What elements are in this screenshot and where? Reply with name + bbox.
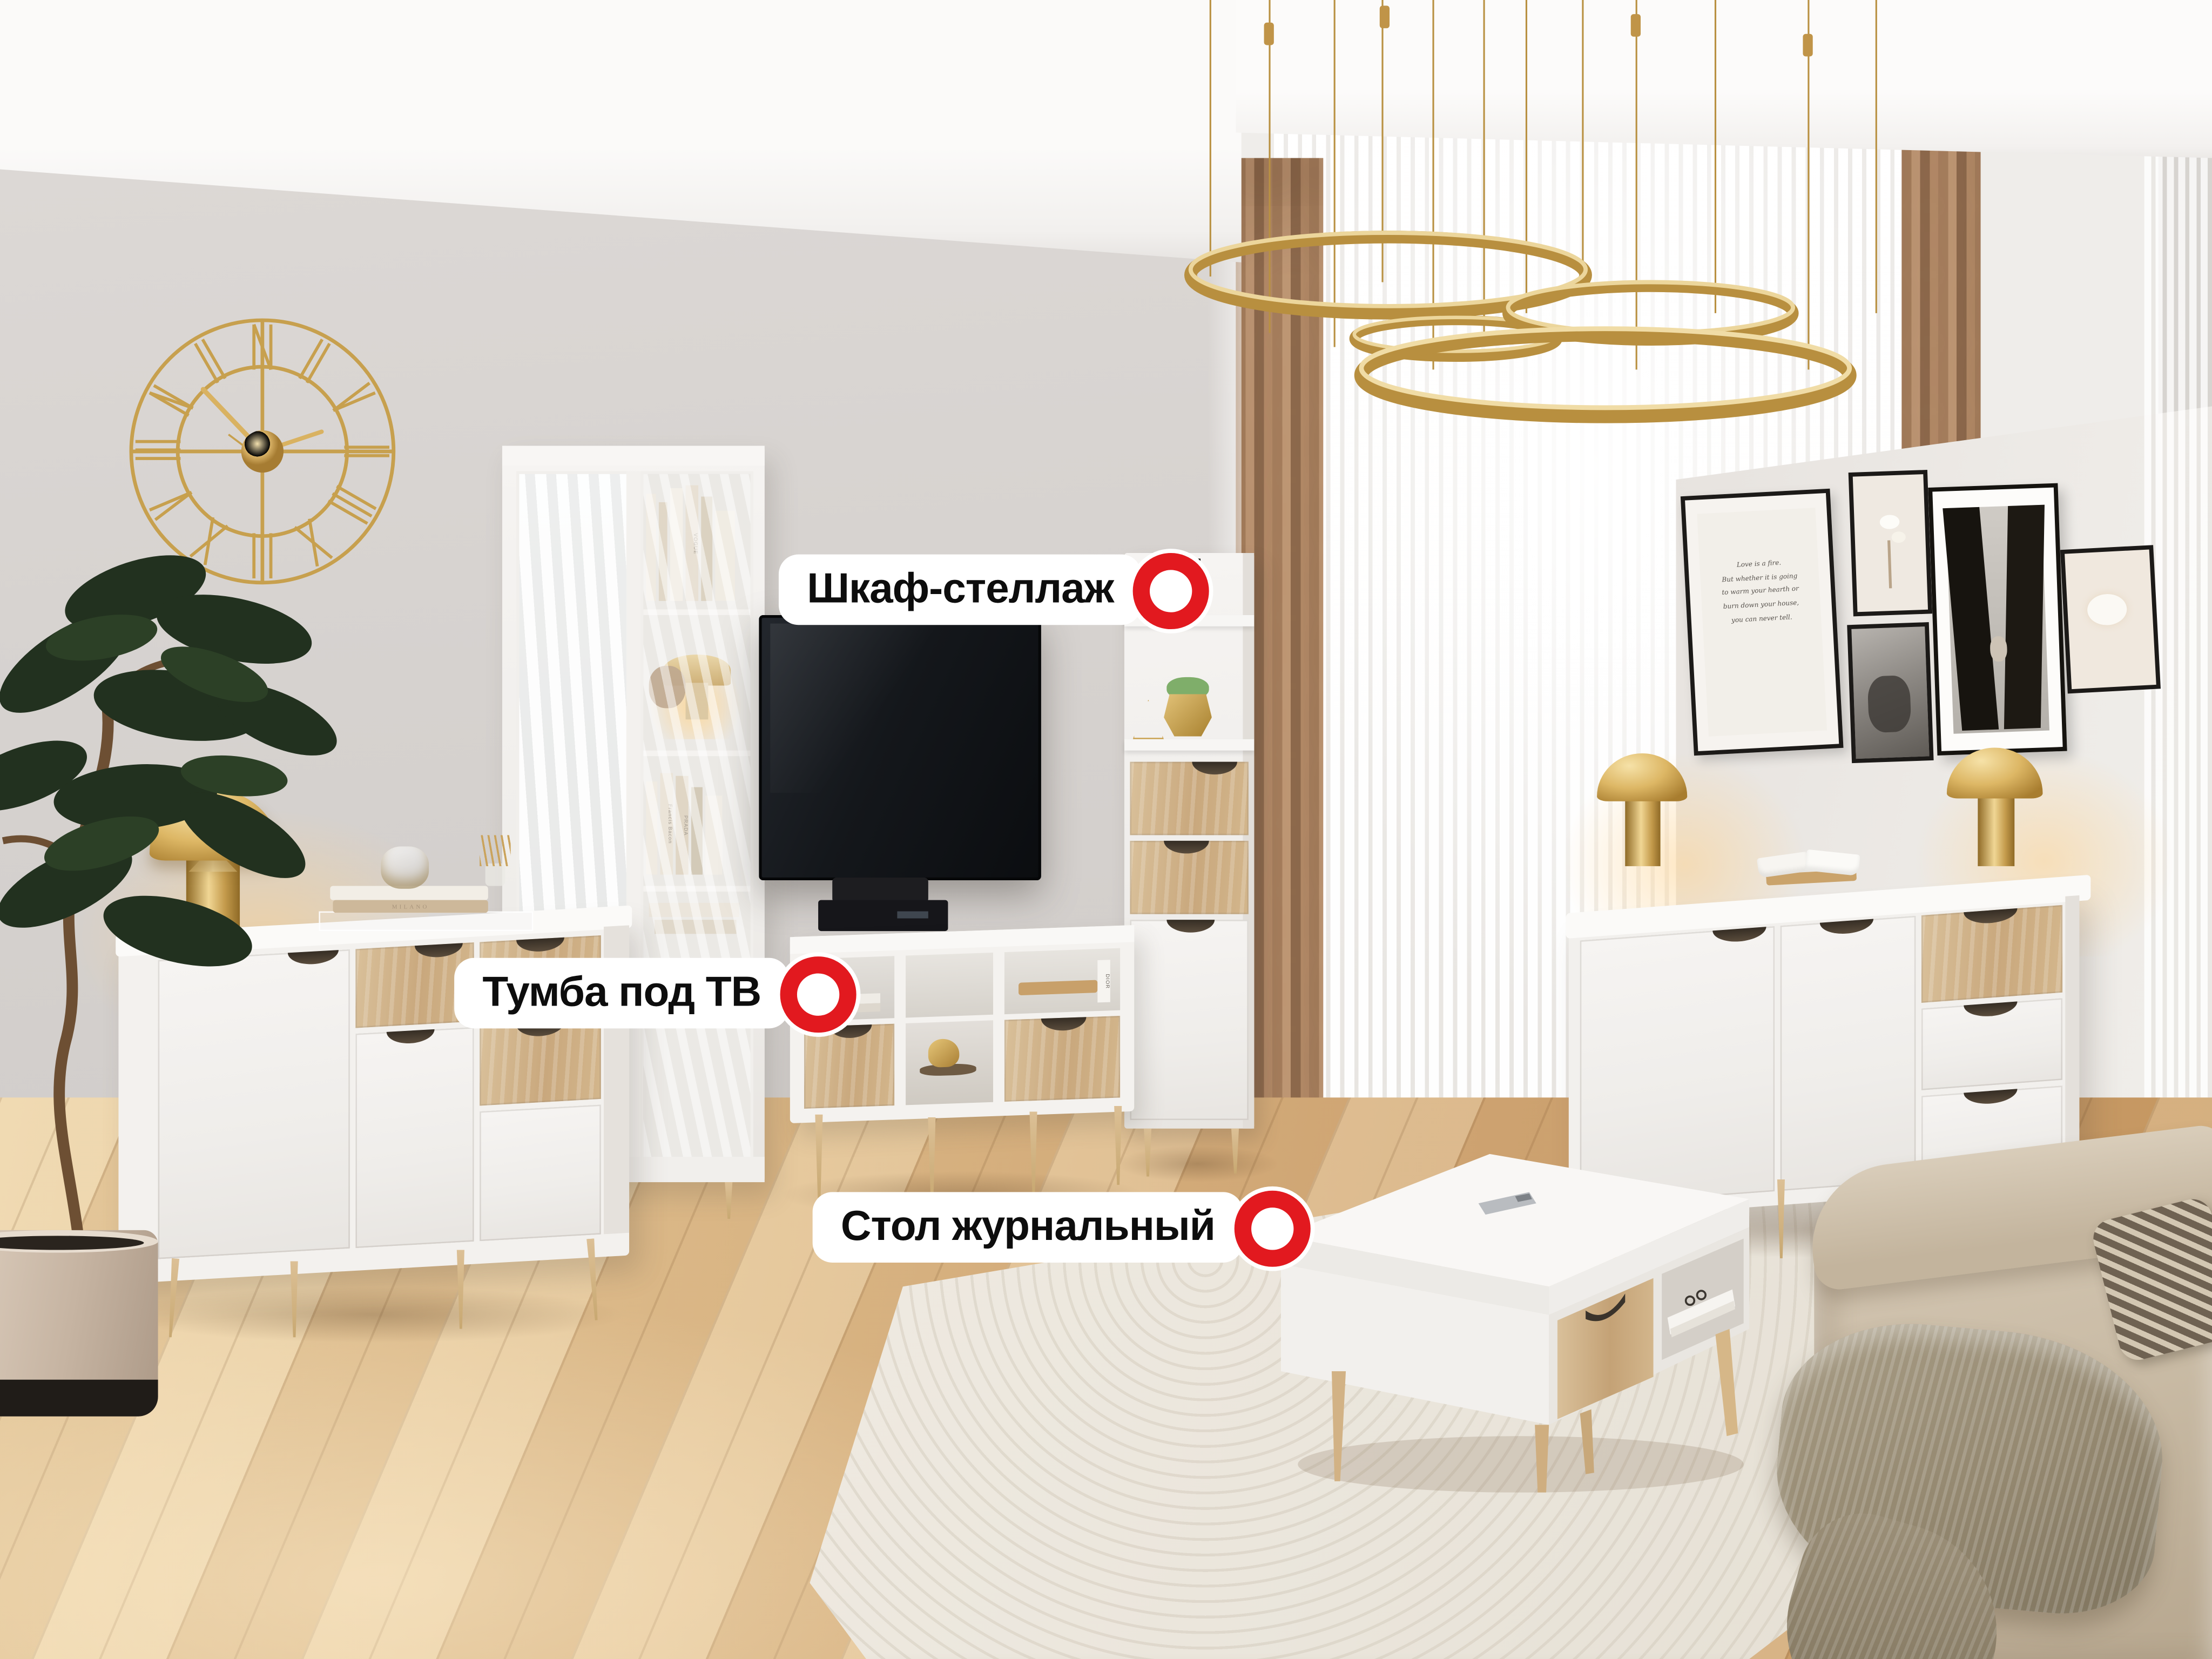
receiver-display [897, 912, 928, 919]
glass-candle [381, 846, 429, 888]
flower [1891, 531, 1906, 543]
gold-mushroom-lamp [1947, 747, 2046, 888]
flower [1879, 515, 1899, 529]
lamp-base [1625, 799, 1660, 866]
lamp-dome [1947, 747, 2043, 798]
tan-book [1019, 980, 1097, 996]
diffuser-reeds [480, 835, 510, 866]
drawer-handle-scoop [1041, 1017, 1087, 1031]
living-room-photo: Love is a fire. But whether it is going … [0, 0, 2212, 1659]
oak-drawer [1130, 762, 1248, 835]
framed-couple-photo [1928, 483, 2067, 756]
glass-door-right: VOGUE Francis Bacon PRADA [640, 471, 753, 1162]
photo-subject [1867, 675, 1912, 733]
gold-mushroom-lamp [1597, 753, 1690, 889]
annotation-marker-ring[interactable] [781, 956, 857, 1033]
drawer-handle-scoop [1964, 908, 2017, 925]
annotation-cabinet[interactable]: Шкаф-стеллаж [779, 550, 1210, 629]
annotation-marker-ring[interactable] [1235, 1191, 1311, 1267]
furniture-leg [1715, 1329, 1738, 1437]
drawer-front [480, 1104, 601, 1241]
book-dior: DIOR [1097, 960, 1110, 1002]
diffuser-jar [485, 864, 505, 886]
annotation-label[interactable]: Стол журнальный [813, 1192, 1244, 1263]
drawer-handle-scoop [1164, 841, 1209, 854]
cabinet-door [1130, 920, 1248, 1120]
drawer-handle-scoop [516, 938, 564, 953]
ring-chandelier [1171, 0, 1961, 466]
annotation-label[interactable]: Шкаф-стеллаж [779, 555, 1142, 625]
oak-drawer [1921, 905, 2062, 1003]
shelf-cabinet [1124, 553, 1263, 1185]
flower [2087, 593, 2128, 626]
gold-geometric-pot [1164, 694, 1212, 736]
annotation-marker-ring[interactable] [1134, 553, 1210, 629]
oak-drawer [480, 1020, 601, 1106]
figure-left [1943, 507, 1999, 731]
framed-flower-hands-photo [2060, 545, 2161, 693]
drawer-handle-scoop [1192, 762, 1237, 775]
open-shelf [1124, 739, 1254, 751]
open-book-decor [1758, 852, 1868, 889]
door-handle-scoop [387, 1029, 435, 1044]
door-handle-scoop [1712, 927, 1766, 943]
door-handle-scoop [1166, 920, 1215, 933]
framed-flower-photo [1849, 470, 1932, 616]
open-cubby [906, 953, 993, 1018]
reed-diffuser [477, 838, 514, 886]
media-receiver [818, 900, 948, 931]
door-handle-scoop [1820, 919, 1873, 936]
open-cubby: DIOR [1004, 948, 1120, 1014]
soundbar [832, 878, 928, 903]
annotation-coffee-table[interactable]: Стол журнальный [813, 1188, 1311, 1267]
frame-mat: Love is a fire. But whether it is going … [1697, 508, 1827, 737]
floor-shadow [1298, 1436, 1743, 1492]
clasped-hands [1990, 636, 2007, 662]
coffee-table [1267, 1137, 1758, 1492]
tv-screen [759, 615, 1041, 880]
open-cubby [906, 1020, 993, 1105]
oak-drawer [804, 1024, 894, 1109]
cabinet-door [355, 1027, 474, 1248]
cabinet-top-rail [502, 446, 765, 466]
annotation-tv-stand[interactable]: Тумба под ТВ [454, 954, 857, 1033]
oak-drawer [1130, 841, 1248, 914]
sofa [1772, 1058, 2212, 1659]
lamp-base [1978, 795, 2014, 866]
annotation-label[interactable]: Тумба под ТВ [454, 958, 789, 1029]
lamp-dome [1597, 753, 1687, 801]
glass-reflection [643, 474, 751, 1160]
oak-drawer [1004, 1016, 1120, 1102]
pot-base [0, 1380, 158, 1417]
quote-text: Love is a fire. But whether it is going … [1697, 508, 1821, 630]
tv-reflection [770, 624, 939, 793]
framed-quote-print: Love is a fire. But whether it is going … [1681, 489, 1844, 756]
tv-stand: CHANEL DIOR [790, 872, 1134, 1219]
floor-shadow [118, 1286, 626, 1343]
figure-right [2004, 505, 2045, 730]
potted-plant [0, 508, 361, 1270]
gold-dog-figurine [928, 1038, 959, 1068]
clock-hub [241, 430, 284, 473]
drawer-handle-scoop [1964, 1001, 2017, 1018]
flower-stem [1887, 540, 1892, 588]
photo [1946, 505, 2049, 734]
plant-pot [0, 1230, 158, 1417]
